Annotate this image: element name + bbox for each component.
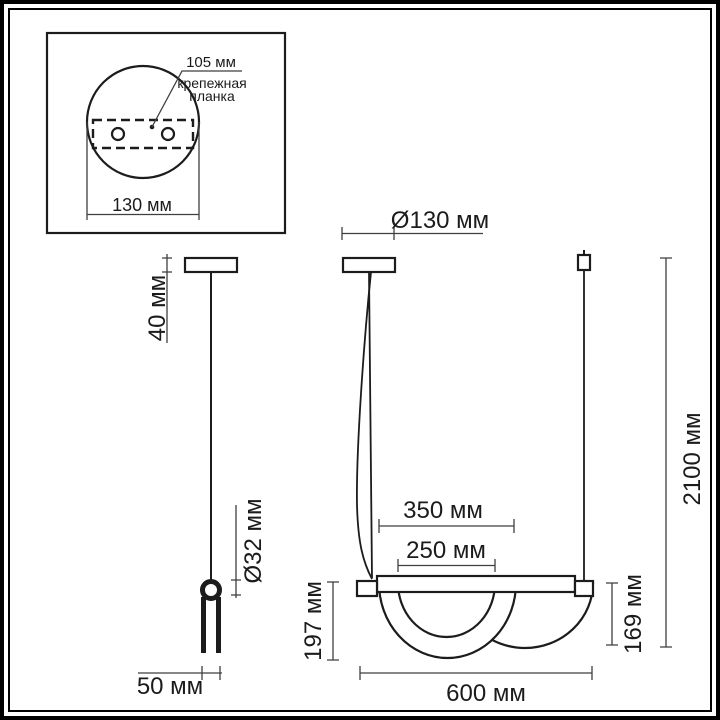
label-fixture-width: 600 мм	[446, 680, 526, 707]
bar-endcap-left	[357, 581, 377, 596]
front-canopy	[343, 258, 395, 272]
inset-mount-view: 105 мм крепежная планка 130 мм	[47, 33, 285, 233]
rear-suspension-fitting	[578, 255, 590, 270]
label-shade-outer-width: 350 мм	[403, 497, 483, 524]
dimension-drawing: 105 мм крепежная планка 130 мм 40 мм Ø32…	[0, 0, 720, 720]
label-shade-inner-width: 250 мм	[406, 537, 486, 564]
bar-endcap-right	[575, 581, 593, 596]
lamp-bar	[377, 576, 575, 592]
label-bracket-line2: планка	[189, 88, 235, 104]
label-front-shade-height: 197 мм	[300, 581, 327, 661]
label-fork-width: 50 мм	[137, 673, 203, 700]
side-canopy	[185, 258, 237, 272]
label-rear-shade-height: 169 мм	[620, 574, 647, 654]
label-base-width: 130 мм	[112, 195, 172, 215]
label-canopy-diameter: Ø130 мм	[391, 207, 489, 234]
label-overall-height: 2100 мм	[679, 412, 706, 505]
label-ring-diameter: Ø32 мм	[240, 498, 267, 583]
label-hole-spacing: 105 мм	[186, 54, 236, 71]
label-canopy-height: 40 мм	[144, 275, 171, 341]
